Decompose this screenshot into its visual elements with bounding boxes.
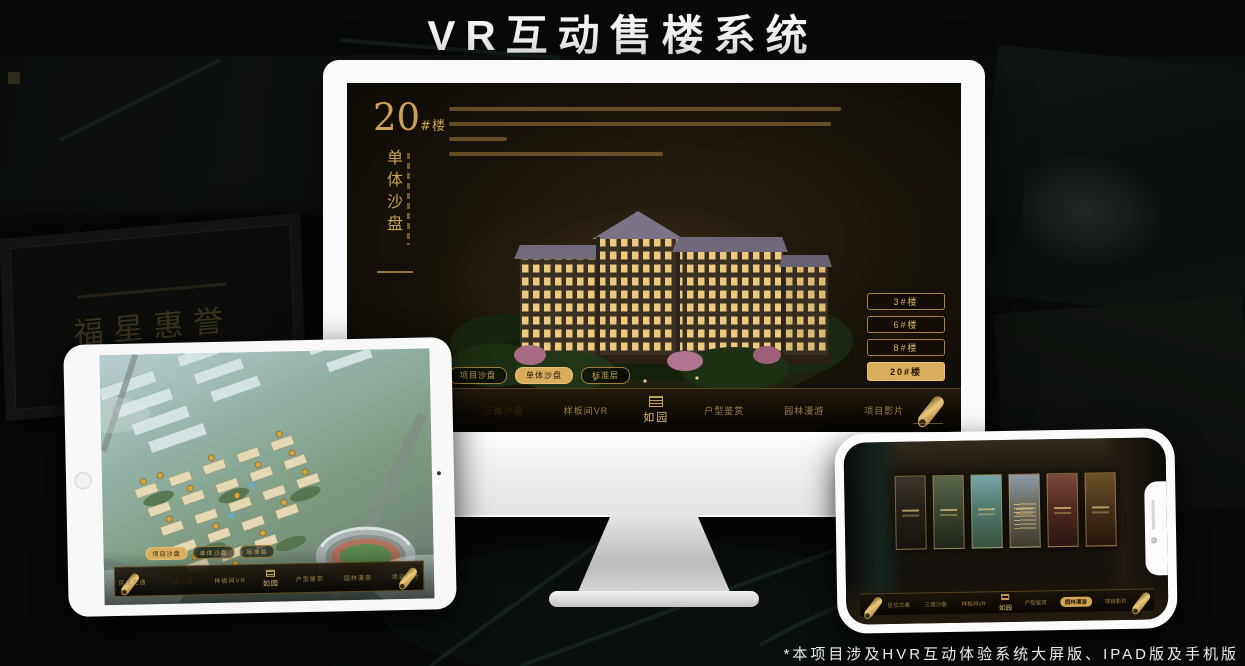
nav-item-location[interactable]: 区位交通: [886, 600, 912, 608]
tab-standard-floor[interactable]: 标准层: [581, 367, 630, 384]
tab-project-sandtable[interactable]: 项目沙盘: [449, 367, 507, 384]
photo-card-5[interactable]: [1046, 473, 1078, 548]
photo-card-3[interactable]: [971, 474, 1003, 549]
footnote: *本项目涉及HVR互动体验系统大屏版、IPAD版及手机版: [784, 643, 1239, 664]
building-description-lines: [449, 107, 841, 167]
ipad-camera-icon: [437, 471, 441, 475]
scroll-icon[interactable]: [864, 595, 883, 615]
ipad-mode-tabs: 项目沙盘 单体沙盘 标准层: [145, 545, 274, 561]
floor-button-6[interactable]: 6#楼: [867, 316, 945, 333]
ipad-mockup: 项目沙盘 单体沙盘 标准层 区位交通 三维沙盘 样板间VR 如园 户型鉴赏 园林…: [63, 337, 457, 617]
background-panel: [973, 45, 1245, 322]
brand-seal-icon: [1001, 593, 1009, 599]
building-number-value: 20: [373, 96, 420, 139]
brand-seal-icon: [266, 569, 275, 576]
nav-item-vr-rooms[interactable]: 样板间VR: [960, 599, 988, 607]
nav-item-project-film[interactable]: 项目影片: [1103, 596, 1129, 604]
phone-camera-icon: [1151, 537, 1157, 543]
background-gold-mark: [8, 72, 20, 84]
nav-item-floorplans[interactable]: 户型鉴赏: [1023, 598, 1049, 606]
brand-logo-text: 如园: [999, 601, 1012, 611]
building-number: 20#楼: [373, 99, 446, 136]
monitor-mode-tabs: 项目沙盘 单体沙盘 标准层: [449, 367, 630, 384]
brand-seal-icon: [649, 396, 663, 407]
nav-item-vr-rooms[interactable]: 样板间VR: [559, 404, 614, 417]
photo-card-6[interactable]: [1084, 472, 1116, 547]
tab-standard-floor[interactable]: 标准层: [239, 545, 274, 559]
plaque-topline: [77, 282, 227, 298]
nav-item-garden-roam[interactable]: 园林漫游: [779, 404, 829, 417]
page: 福星惠誉 VR互动售楼系统 20#楼 单体沙盘: [0, 0, 1245, 666]
scroll-capsule-icon: [398, 566, 419, 590]
scroll-capsule-icon: [916, 393, 946, 427]
scroll-icon[interactable]: [913, 392, 949, 430]
photo-card-row: [895, 472, 1117, 550]
photo-card-4[interactable]: [1009, 473, 1041, 548]
tab-single-sandtable[interactable]: 单体沙盘: [192, 546, 234, 560]
phone-screen: 区位交通 三维沙盘 样板间VR 如园 户型鉴赏 园林漫游 项目影片: [843, 437, 1168, 625]
phone-notch: [1144, 481, 1168, 575]
building-number-suffix: #楼: [420, 119, 446, 134]
building-subtitle-en-decor: [407, 153, 410, 245]
nav-item-location[interactable]: 区位交通: [115, 577, 149, 587]
photo-card-2[interactable]: [933, 475, 965, 550]
scroll-icon[interactable]: [1132, 590, 1151, 610]
page-title: VR互动售楼系统: [0, 2, 1245, 63]
floor-button-20[interactable]: 20#楼: [867, 362, 945, 381]
phone-speaker-icon: [1151, 499, 1155, 529]
building-subtitle: 单体沙盘: [381, 149, 405, 237]
tab-project-sandtable[interactable]: 项目沙盘: [145, 547, 187, 561]
brand-logo: 如园: [999, 593, 1012, 611]
subtitle-underline: [377, 271, 413, 273]
nav-item-sandtable[interactable]: 三维沙盘: [923, 600, 949, 608]
ipad-screen: 项目沙盘 单体沙盘 标准层 区位交通 三维沙盘 样板间VR 如园 户型鉴赏 园林…: [99, 348, 434, 605]
building-render[interactable]: [435, 169, 865, 399]
nav-item-garden-roam[interactable]: 园林漫游: [1060, 596, 1092, 607]
scroll-icon[interactable]: [399, 566, 418, 586]
tab-single-sandtable[interactable]: 单体沙盘: [515, 367, 573, 384]
photo-card-1[interactable]: [895, 475, 927, 550]
nav-item-sandtable[interactable]: 三维沙盘: [163, 576, 197, 586]
nav-item-sandtable[interactable]: 三维沙盘: [479, 404, 529, 417]
floor-button-group: 3#楼 6#楼 8#楼 20#楼: [867, 293, 945, 381]
brand-logo-text: 如园: [263, 578, 279, 588]
monitor-stand-base: [549, 591, 759, 607]
nav-item-floorplans[interactable]: 户型鉴赏: [293, 573, 327, 583]
brand-logo: 如园: [643, 396, 669, 425]
brand-logo: 如园: [263, 569, 279, 588]
floor-button-8[interactable]: 8#楼: [867, 339, 945, 356]
ipad-home-button[interactable]: [74, 472, 92, 490]
nav-item-floorplans[interactable]: 户型鉴赏: [699, 404, 749, 417]
nav-item-vr-rooms[interactable]: 样板间VR: [211, 575, 249, 585]
nav-item-project-film[interactable]: 项目影片: [859, 404, 909, 417]
phone-mockup: 区位交通 三维沙盘 样板间VR 如园 户型鉴赏 园林漫游 项目影片: [834, 428, 1177, 634]
nav-item-garden-roam[interactable]: 园林漫游: [341, 572, 375, 582]
brand-logo-text: 如园: [643, 409, 669, 425]
floor-button-3[interactable]: 3#楼: [867, 293, 945, 310]
